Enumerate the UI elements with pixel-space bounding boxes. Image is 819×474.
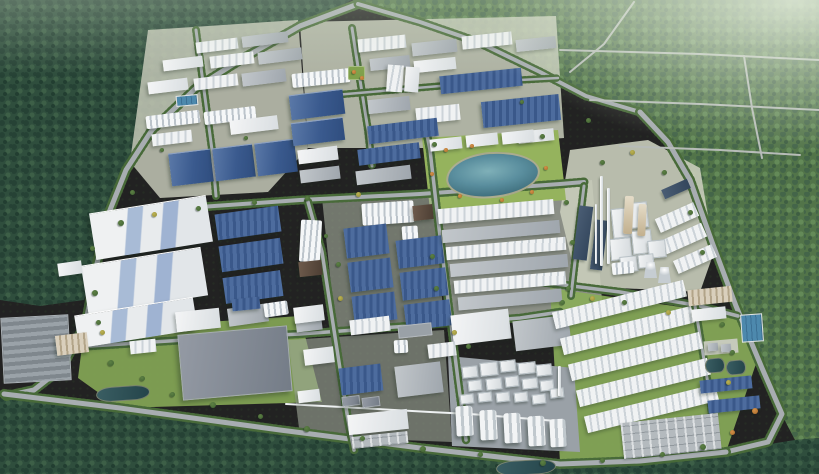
process-unit <box>532 393 547 404</box>
tree-bush <box>560 300 565 305</box>
tree-bush <box>564 200 569 205</box>
um-silo-row <box>291 68 350 88</box>
yellow-tree-bush <box>452 330 457 335</box>
west-office <box>57 260 83 276</box>
process-unit <box>479 361 498 377</box>
buildings-layer <box>0 0 819 474</box>
tree-bush <box>196 206 201 211</box>
ul-factory <box>209 51 254 68</box>
process-unit <box>521 377 538 390</box>
chimney-stack <box>600 176 603 266</box>
tree-bush <box>96 320 101 325</box>
tree-bush <box>586 118 591 123</box>
process-stack <box>558 366 561 396</box>
bl-building <box>175 308 221 332</box>
tree-bush <box>118 220 124 226</box>
orange-tree-bush <box>500 198 504 202</box>
tree-bush <box>662 170 667 175</box>
um-factory <box>299 166 340 184</box>
process-unit <box>478 391 493 402</box>
orange-tree-bush <box>752 408 758 414</box>
process-unit <box>499 359 516 373</box>
um-shed <box>367 118 439 144</box>
tree-bush <box>420 446 426 452</box>
um-workshop <box>386 64 404 92</box>
ul-blue-hall <box>212 144 256 182</box>
tree-bush <box>720 322 725 327</box>
bl-office <box>55 332 89 356</box>
tree-bush <box>540 134 545 139</box>
industrial-park-aerial-rendering <box>0 0 819 474</box>
tree-bush <box>324 234 328 238</box>
tree-bush <box>600 458 605 463</box>
orange-tree-bush <box>352 70 356 74</box>
tree-bush <box>258 414 263 419</box>
retention-pond-south <box>496 458 557 474</box>
yellow-tree-bush <box>630 150 635 155</box>
br-building <box>691 306 726 321</box>
yellow-tree-bush <box>356 192 361 197</box>
tree-bush <box>92 290 98 296</box>
bc-workshop <box>303 346 335 366</box>
process-unit <box>485 377 502 391</box>
bc-hall <box>394 361 443 397</box>
um-factory <box>413 57 456 73</box>
tree-bush <box>210 402 216 408</box>
tree-bush <box>622 300 627 305</box>
cs-shed <box>399 267 448 300</box>
bc-workshop <box>297 389 320 404</box>
um-workshop <box>404 67 420 93</box>
ul-factory <box>257 47 302 64</box>
ul-factory <box>151 130 192 147</box>
orange-tree-bush <box>470 144 474 148</box>
process-unit <box>535 363 552 377</box>
process-unit <box>504 375 519 387</box>
process-unit <box>550 387 565 398</box>
orange-tree-bush <box>444 148 448 152</box>
tree-bush <box>160 148 164 152</box>
tree-bush <box>360 436 365 441</box>
bc-unit <box>341 395 360 407</box>
cs-office <box>412 204 433 221</box>
treatment-unit <box>708 343 719 352</box>
preheater-tower <box>637 204 647 236</box>
big-silo-group <box>479 410 498 441</box>
tree-bush <box>170 392 175 397</box>
tree-bush <box>336 262 341 267</box>
tree-bush <box>688 210 693 215</box>
tree-bush <box>252 200 257 205</box>
treatment-basin <box>704 357 725 374</box>
process-unit <box>496 391 511 402</box>
orange-tree-bush <box>530 190 534 194</box>
orange-tree-bush <box>458 194 462 198</box>
orange-tree-bush <box>730 430 735 435</box>
bl-utility <box>129 339 156 355</box>
tree-bush <box>540 460 546 466</box>
cs-column-row <box>361 200 414 226</box>
plant-silos <box>611 261 634 275</box>
tree-bush <box>108 360 114 366</box>
um-factory <box>411 39 457 57</box>
tree-bush <box>478 452 483 457</box>
treatment-basin <box>725 359 746 376</box>
tree-bush <box>520 100 524 104</box>
orange-tree-bush <box>544 166 548 170</box>
um-factory <box>297 146 338 165</box>
cs-shed <box>347 257 393 292</box>
big-silo-group <box>527 416 546 447</box>
tree-bush <box>566 286 571 291</box>
tree-bush <box>700 444 706 450</box>
br-office <box>687 286 732 307</box>
tree-bush <box>130 190 135 195</box>
ul-factory <box>195 37 238 53</box>
west-silo-group <box>263 300 289 317</box>
process-unit <box>514 391 529 402</box>
tree-bush <box>660 452 665 457</box>
tree-bush <box>432 142 437 147</box>
um-factory <box>357 35 406 53</box>
tree-bush <box>570 240 575 245</box>
yellow-tree-bush <box>590 296 595 301</box>
bc-tanks <box>394 340 409 354</box>
process-unit <box>467 379 482 391</box>
um-factory <box>515 36 556 52</box>
rc-warehouse <box>438 199 555 224</box>
um-factory <box>461 31 512 49</box>
tree-bush <box>140 376 145 381</box>
bc-blue-hall <box>339 364 384 396</box>
ul-basin <box>176 94 199 107</box>
tree-bush <box>304 426 310 432</box>
um-shed <box>357 142 420 165</box>
bl-big-hall <box>177 325 292 400</box>
yellow-tree-bush <box>100 330 105 335</box>
plant-dark-hall <box>661 179 691 200</box>
tree-bush <box>244 136 248 140</box>
cs-office <box>298 260 322 277</box>
process-unit <box>517 361 536 375</box>
tree-bush <box>305 196 310 201</box>
treatment-pool-grid <box>740 313 764 342</box>
retention-pond-west <box>96 384 151 403</box>
um-factory <box>355 165 411 186</box>
orange-tree-bush <box>360 76 364 80</box>
process-unit <box>461 365 478 379</box>
ul-factory <box>162 56 203 72</box>
cs-row-houses <box>299 219 322 262</box>
yellow-tree-bush <box>152 212 157 217</box>
tree-bush <box>434 286 439 291</box>
ul-factory <box>242 31 289 48</box>
plant-dark-hall <box>590 219 608 270</box>
big-silo-group <box>455 406 474 437</box>
process-unit <box>460 393 475 404</box>
um-blue-hall <box>289 89 346 120</box>
cs-shed <box>343 223 389 258</box>
tree-bush <box>730 350 735 355</box>
ul-factory <box>147 78 188 95</box>
um-blue-hall <box>291 117 345 146</box>
tree-bush <box>700 250 705 255</box>
tree-bush <box>90 246 95 251</box>
tree-bush <box>430 254 435 259</box>
ul-tank-row <box>145 110 200 129</box>
big-silo-group <box>503 413 522 444</box>
orange-tree-bush <box>430 172 434 176</box>
plant-dark-hall <box>573 205 593 260</box>
bc-utility-pad <box>397 322 432 338</box>
yellow-tree-bush <box>726 380 731 385</box>
tree-bush <box>600 160 605 165</box>
yellow-tree-bush <box>338 296 343 301</box>
rc-hall <box>450 309 511 346</box>
west-blue-shed <box>215 206 282 241</box>
cs-shed <box>395 235 444 268</box>
chimney-stack <box>595 204 597 264</box>
ul-factory <box>241 68 286 86</box>
yellow-tree-bush <box>666 310 671 315</box>
ul-blue-hall <box>254 139 298 177</box>
um-factory <box>367 96 410 114</box>
um-blue-hall <box>439 68 522 94</box>
big-silo-group <box>549 419 566 448</box>
cooling-tower <box>658 267 671 283</box>
bc-workshop <box>427 341 456 358</box>
west-blue-shed <box>218 238 283 272</box>
ul-blue-hall <box>168 149 214 187</box>
chimney-stack <box>607 188 610 264</box>
tree-bush <box>466 344 471 349</box>
bc-unit <box>361 396 380 408</box>
ul-factory <box>193 73 238 90</box>
